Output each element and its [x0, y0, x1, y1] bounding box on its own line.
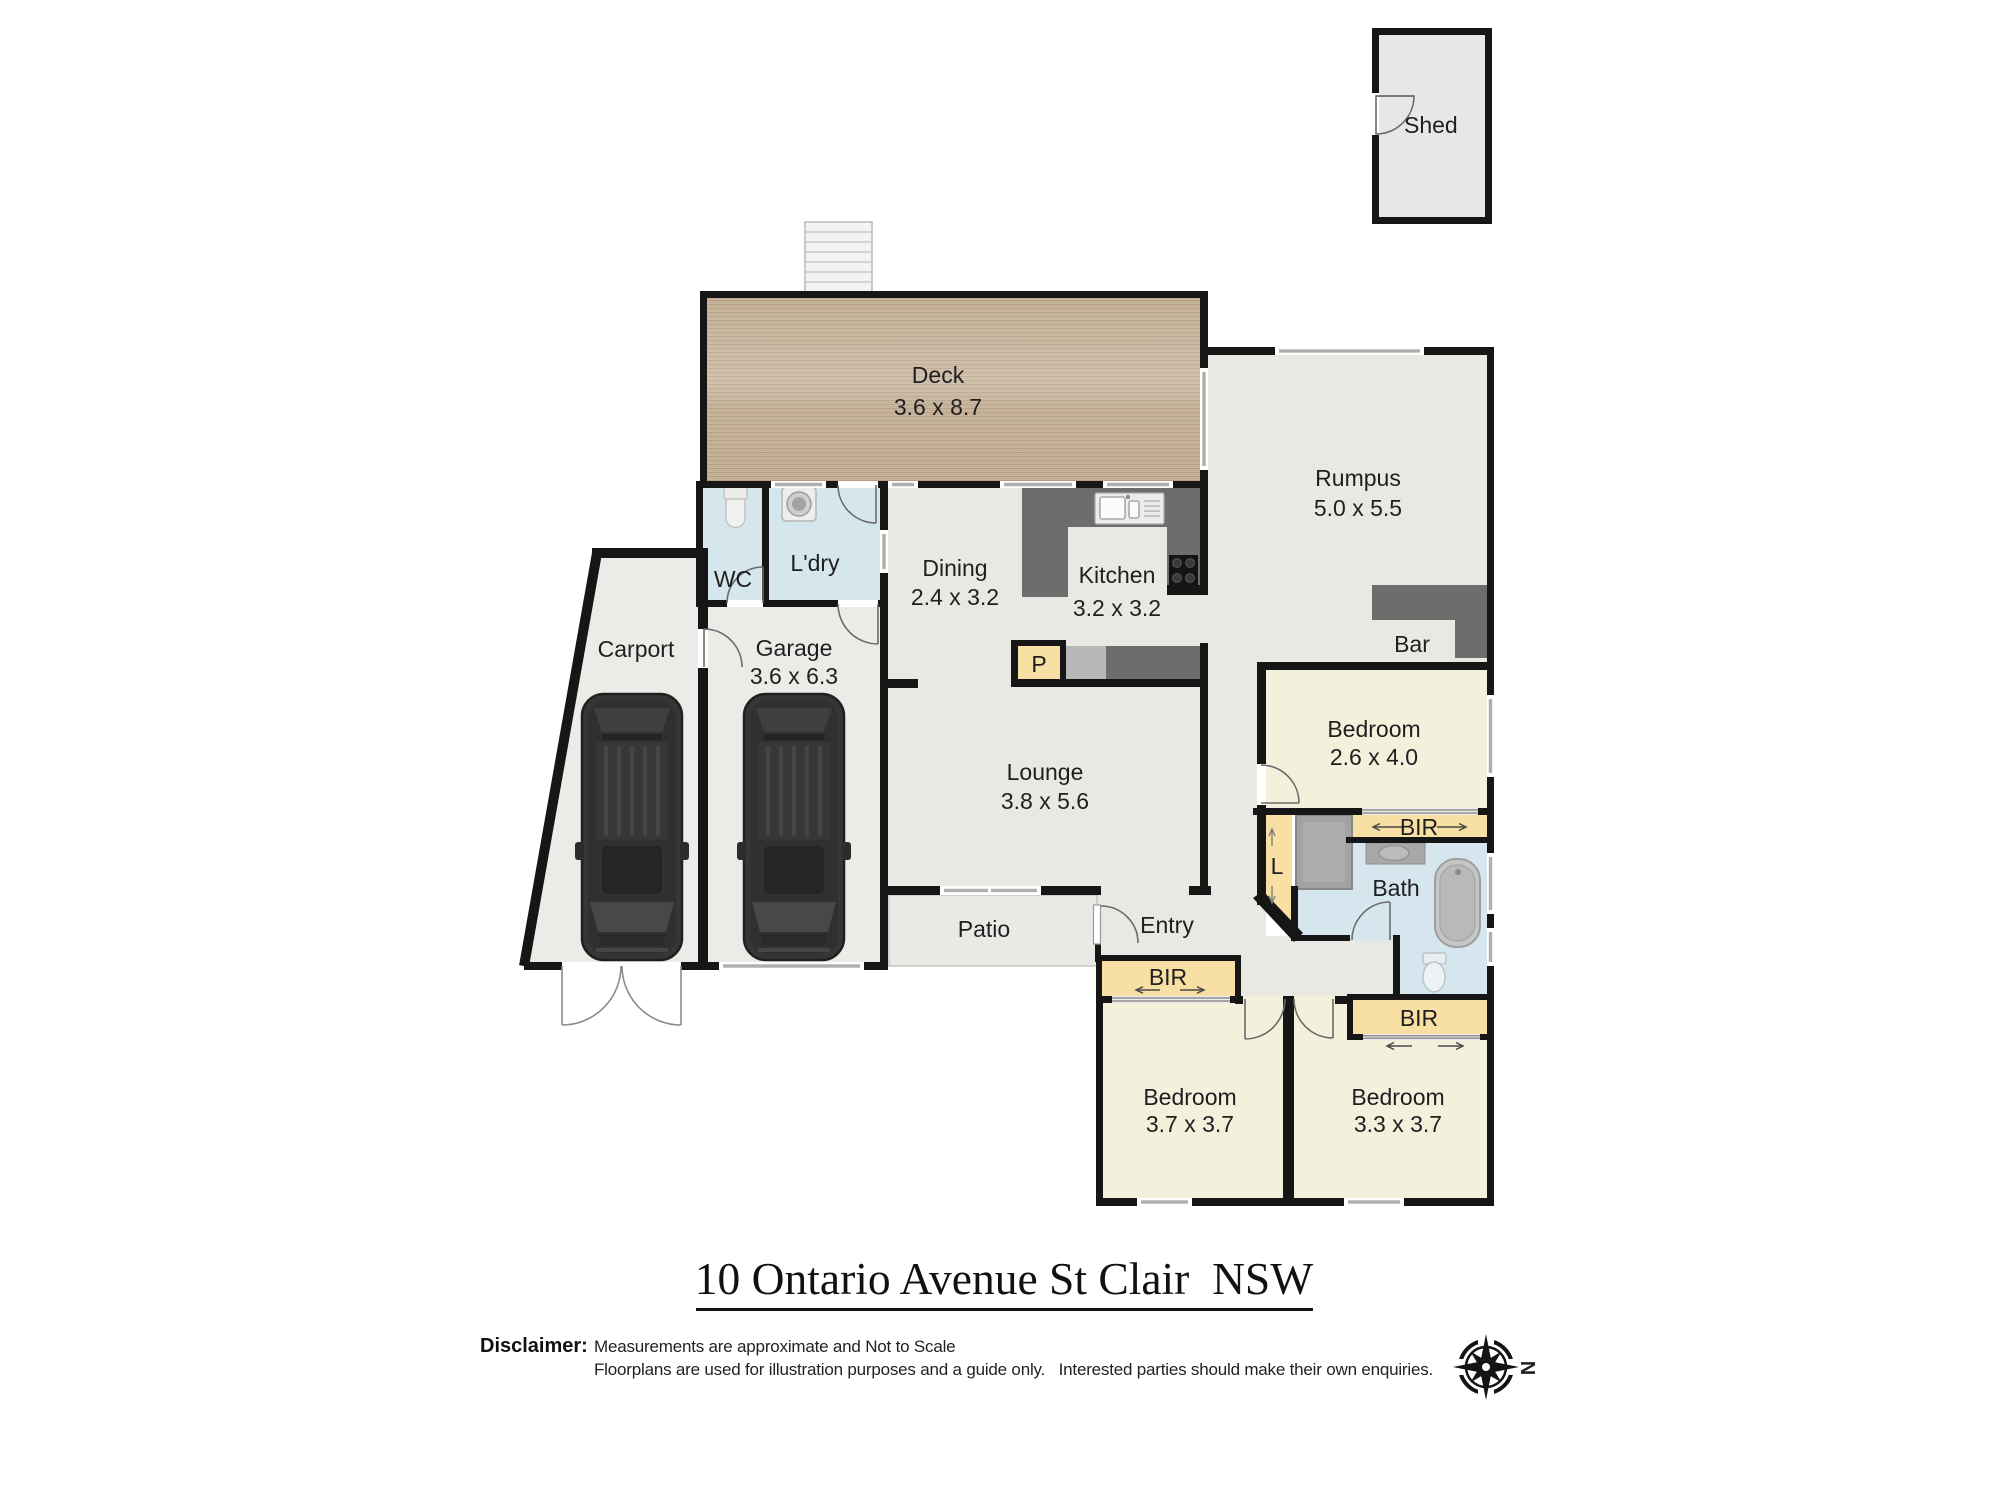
svg-text:Bath: Bath: [1372, 875, 1419, 901]
svg-text:5.0 x 5.5: 5.0 x 5.5: [1314, 495, 1402, 521]
svg-text:3.7 x 3.7: 3.7 x 3.7: [1146, 1111, 1234, 1137]
svg-text:BIR: BIR: [1400, 814, 1438, 840]
svg-text:Rumpus: Rumpus: [1315, 465, 1401, 491]
svg-text:BIR: BIR: [1400, 1005, 1438, 1031]
svg-text:Dining: Dining: [922, 555, 987, 581]
svg-text:Measurements are approximate a: Measurements are approximate and Not to …: [594, 1337, 955, 1356]
svg-text:3.6 x 6.3: 3.6 x 6.3: [750, 663, 838, 689]
svg-text:Bedroom: Bedroom: [1351, 1084, 1444, 1110]
svg-text:3.2 x 3.2: 3.2 x 3.2: [1073, 595, 1161, 621]
svg-text:Kitchen: Kitchen: [1079, 562, 1156, 588]
svg-text:Entry: Entry: [1140, 912, 1194, 938]
svg-text:Bedroom: Bedroom: [1143, 1084, 1236, 1110]
svg-text:L'dry: L'dry: [790, 550, 840, 576]
svg-text:Disclaimer:: Disclaimer:: [480, 1335, 588, 1357]
svg-text:2.4 x 3.2: 2.4 x 3.2: [911, 584, 999, 610]
svg-text:N: N: [1516, 1361, 1538, 1375]
svg-text:10 Ontario Avenue St Clair NS: 10 Ontario Avenue St Clair NSW: [695, 1253, 1313, 1304]
svg-text:3.3 x 3.7: 3.3 x 3.7: [1354, 1111, 1442, 1137]
svg-text:P: P: [1031, 651, 1046, 677]
svg-text:Floorplans are used for illust: Floorplans are used for illustration pur…: [594, 1360, 1433, 1379]
svg-text:Shed: Shed: [1404, 112, 1458, 138]
svg-text:Carport: Carport: [598, 636, 675, 662]
svg-text:Garage: Garage: [756, 635, 833, 661]
svg-text:L: L: [1271, 853, 1284, 879]
svg-text:Deck: Deck: [912, 362, 965, 388]
svg-text:WC: WC: [714, 566, 752, 592]
svg-text:Patio: Patio: [958, 916, 1010, 942]
svg-text:Bedroom: Bedroom: [1327, 716, 1420, 742]
svg-text:BIR: BIR: [1149, 964, 1187, 990]
svg-text:3.8 x 5.6: 3.8 x 5.6: [1001, 788, 1089, 814]
svg-text:Bar: Bar: [1394, 631, 1430, 657]
svg-text:Lounge: Lounge: [1007, 759, 1084, 785]
svg-text:2.6 x 4.0: 2.6 x 4.0: [1330, 744, 1418, 770]
svg-text:3.6 x 8.7: 3.6 x 8.7: [894, 394, 982, 420]
